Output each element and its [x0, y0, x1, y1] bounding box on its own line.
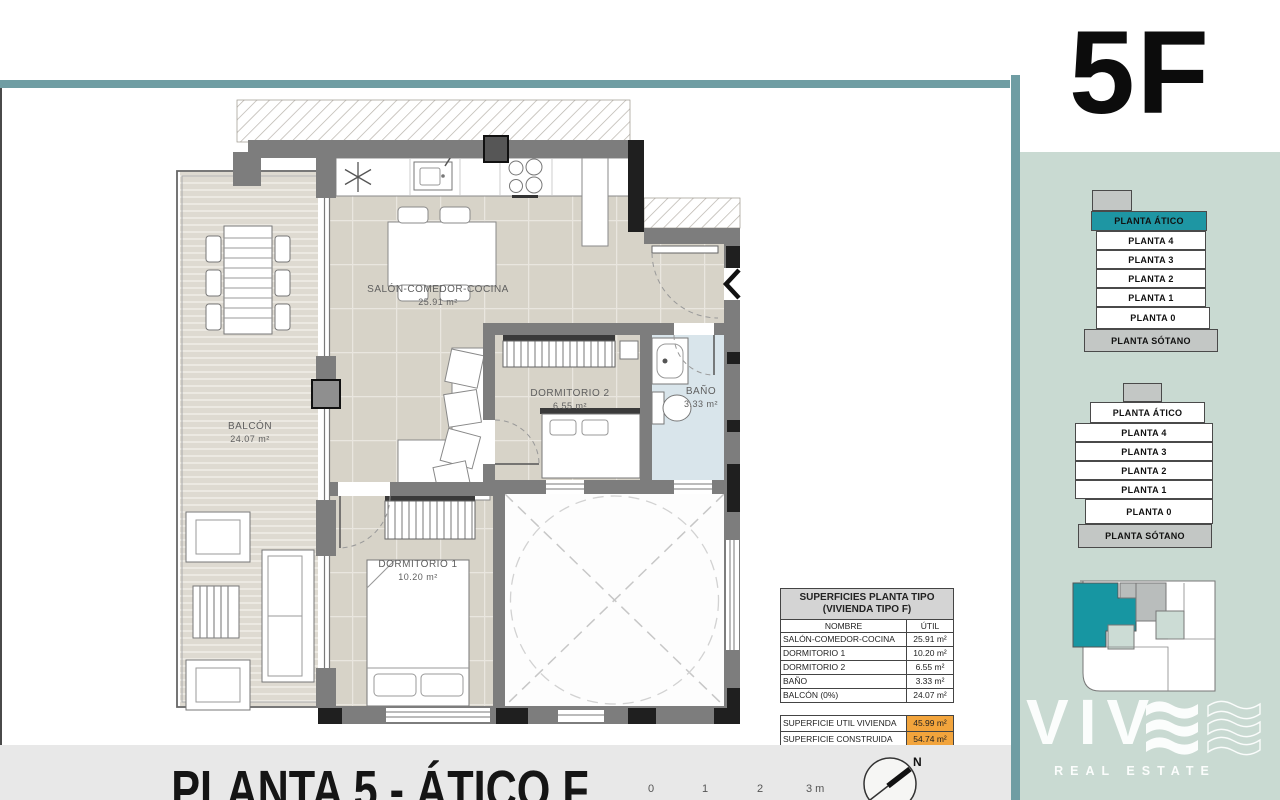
surfaces-table-title: SUPERFICIES PLANTA TIPO (VIVIENDA TIPO F… [781, 589, 953, 620]
north-compass-icon: N [856, 751, 928, 800]
outdoor-table [206, 226, 290, 334]
sidebar: 5F PLANTA ÁTICO PLANTA 4 PLANTA 3 PLANTA… [1020, 0, 1280, 800]
frame-band-right [1011, 75, 1020, 800]
table-row: BALCÓN (0%)24.07 m² [781, 689, 953, 702]
floor-row-atico-selected: PLANTA ÁTICO [1091, 211, 1207, 231]
floor-row: PLANTA 2 [1075, 461, 1213, 480]
entrance-arrow-icon [726, 270, 739, 298]
site-key-plan [1068, 565, 1220, 697]
scale-label: 0 [648, 783, 654, 795]
table-row: SUPERFICIE UTIL VIVIENDA45.99 m² [781, 716, 953, 732]
frame-line-left [0, 88, 2, 745]
floor-row: PLANTA 0 [1096, 307, 1210, 329]
brand-logo-text: VIV [1026, 690, 1159, 754]
sheet-title: PLANTA 5 - ÁTICO F [124, 759, 636, 800]
outdoor-armchair [186, 512, 250, 562]
floor-row: PLANTA 1 [1096, 288, 1206, 307]
stack-roof-box [1092, 190, 1132, 211]
room-label-salon: SALÓN-COMEDOR-COCINA25.91 m² [367, 284, 509, 307]
floor-row: PLANTA 3 [1096, 250, 1206, 269]
floor-row-sotano: PLANTA SÓTANO [1078, 524, 1212, 548]
surfaces-table-header: NOMBRE ÚTIL [781, 620, 953, 633]
floor-row: PLANTA 1 [1075, 480, 1213, 499]
floor-row: PLANTA 3 [1075, 442, 1213, 461]
floor-row: PLANTA 4 [1096, 231, 1206, 250]
brand-tagline: REAL ESTATE [1040, 764, 1230, 778]
table-row: SALÓN-COMEDOR-COCINA25.91 m² [781, 633, 953, 647]
sidebar-panel: PLANTA ÁTICO PLANTA 4 PLANTA 3 PLANTA 2 … [1020, 152, 1280, 800]
table-row: DORMITORIO 26.55 m² [781, 661, 953, 675]
scale-label: 3 m [806, 783, 824, 795]
brand-logo-wave-icon [1146, 698, 1266, 756]
outdoor-sofa [262, 550, 314, 682]
table-row: BAÑO3.33 m² [781, 675, 953, 689]
room-label-dormitorio1: DORMITORIO 110.20 m² [378, 559, 457, 582]
floor-row: PLANTA ÁTICO [1090, 402, 1205, 423]
scale-label: 2 [757, 783, 763, 795]
outdoor-coffee-table [193, 586, 239, 638]
floor-row: PLANTA 2 [1096, 269, 1206, 288]
stack-roof-box [1123, 383, 1162, 402]
bathroom-fixtures [652, 338, 691, 424]
sheet-footer: PLANTA 5 - ÁTICO F 0 1 2 3 m N [0, 745, 1011, 800]
scale-label: 1 [702, 783, 708, 795]
frame-band-top [0, 80, 1010, 88]
room-label-bano: BAÑO3.33 m² [684, 386, 718, 409]
unit-code: 5F [1020, 14, 1260, 132]
room-label-balcon: BALCÓN24.07 m² [228, 421, 272, 444]
kitchen-cabinet [582, 158, 608, 246]
room-label-dormitorio2: DORMITORIO 26.55 m² [530, 388, 609, 411]
svg-text:N: N [913, 755, 922, 769]
floor-row-sotano: PLANTA SÓTANO [1084, 329, 1218, 352]
surfaces-totals: SUPERFICIE UTIL VIVIENDA45.99 m² SUPERFI… [780, 715, 954, 748]
floor-row: PLANTA 0 [1085, 499, 1213, 524]
plan-sheet: SALÓN-COMEDOR-COCINA25.91 m² DORMITORIO … [0, 0, 1020, 800]
surfaces-table: SUPERFICIES PLANTA TIPO (VIVIENDA TIPO F… [780, 588, 954, 748]
floor-row: PLANTA 4 [1075, 423, 1213, 442]
table-row: DORMITORIO 110.20 m² [781, 647, 953, 661]
outdoor-armchair [186, 660, 250, 710]
